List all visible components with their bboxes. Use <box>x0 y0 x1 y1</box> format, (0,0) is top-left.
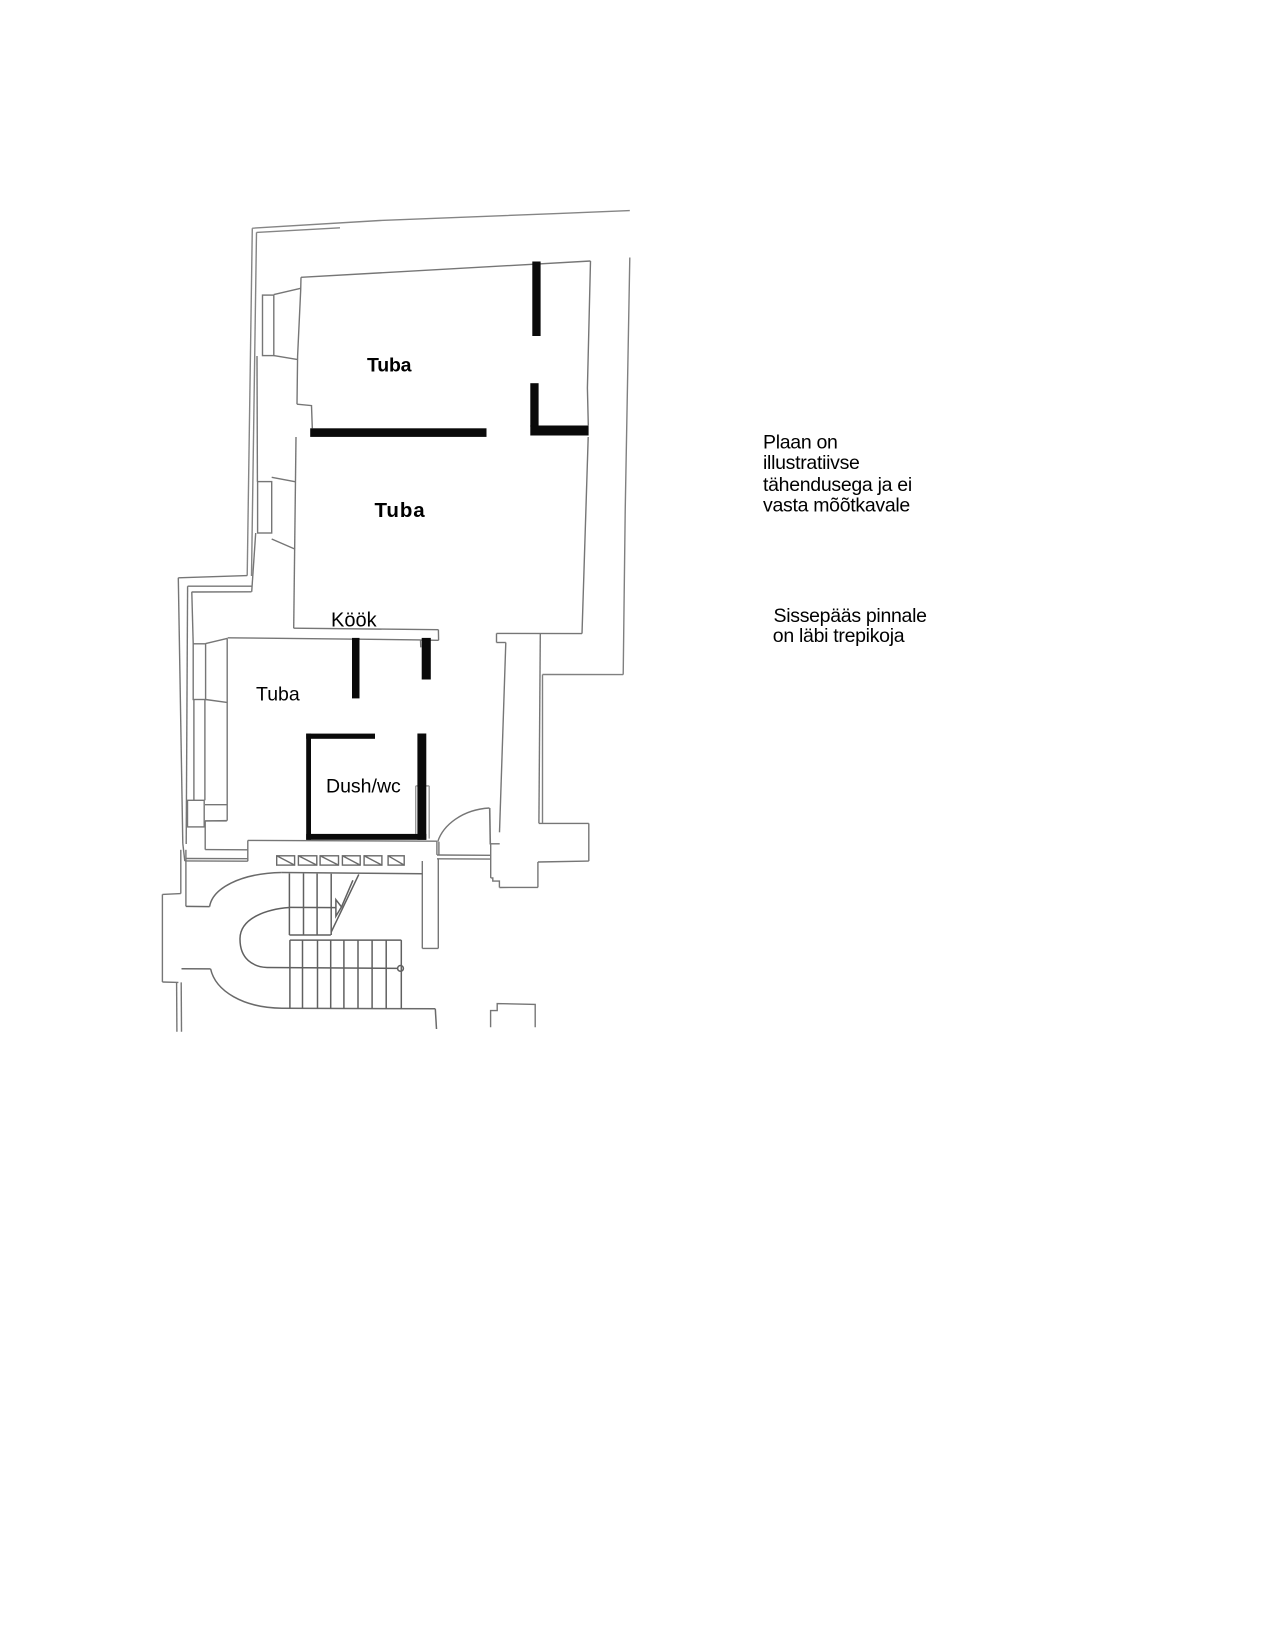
svg-text:Plaan on: Plaan on <box>763 431 838 453</box>
svg-text:Tuba: Tuba <box>367 355 412 377</box>
svg-text:vasta mõõtkavale: vasta mõõtkavale <box>763 494 910 516</box>
svg-text:Tuba: Tuba <box>256 684 300 706</box>
svg-text:Tuba: Tuba <box>375 499 426 522</box>
svg-text:illustratiivse: illustratiivse <box>763 452 860 474</box>
svg-text:Dush/wc: Dush/wc <box>326 776 401 798</box>
svg-text:Köök: Köök <box>331 610 378 632</box>
svg-text:tähendusega ja ei: tähendusega ja ei <box>763 474 912 496</box>
svg-text:Sissepääs pinnale: Sissepääs pinnale <box>774 605 927 627</box>
svg-text:on läbi trepikoja: on läbi trepikoja <box>773 625 905 647</box>
